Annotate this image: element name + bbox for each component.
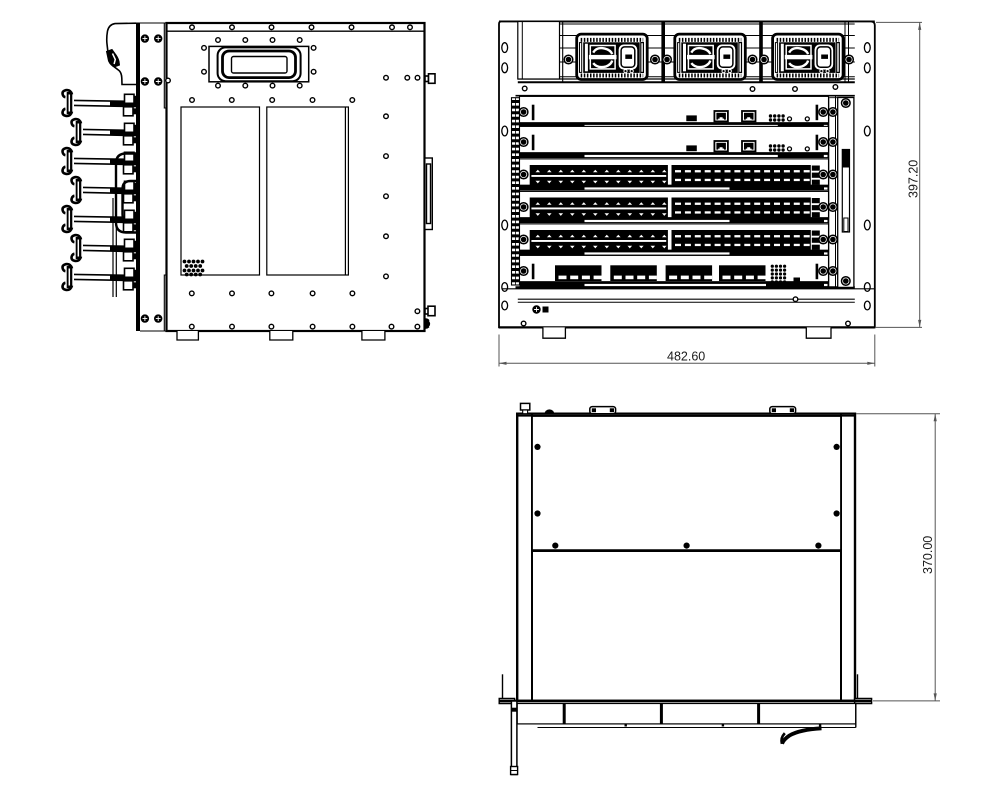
svg-text:397.20: 397.20 bbox=[907, 160, 921, 198]
svg-text:482.60: 482.60 bbox=[667, 350, 705, 364]
svg-text:370.00: 370.00 bbox=[921, 536, 935, 574]
